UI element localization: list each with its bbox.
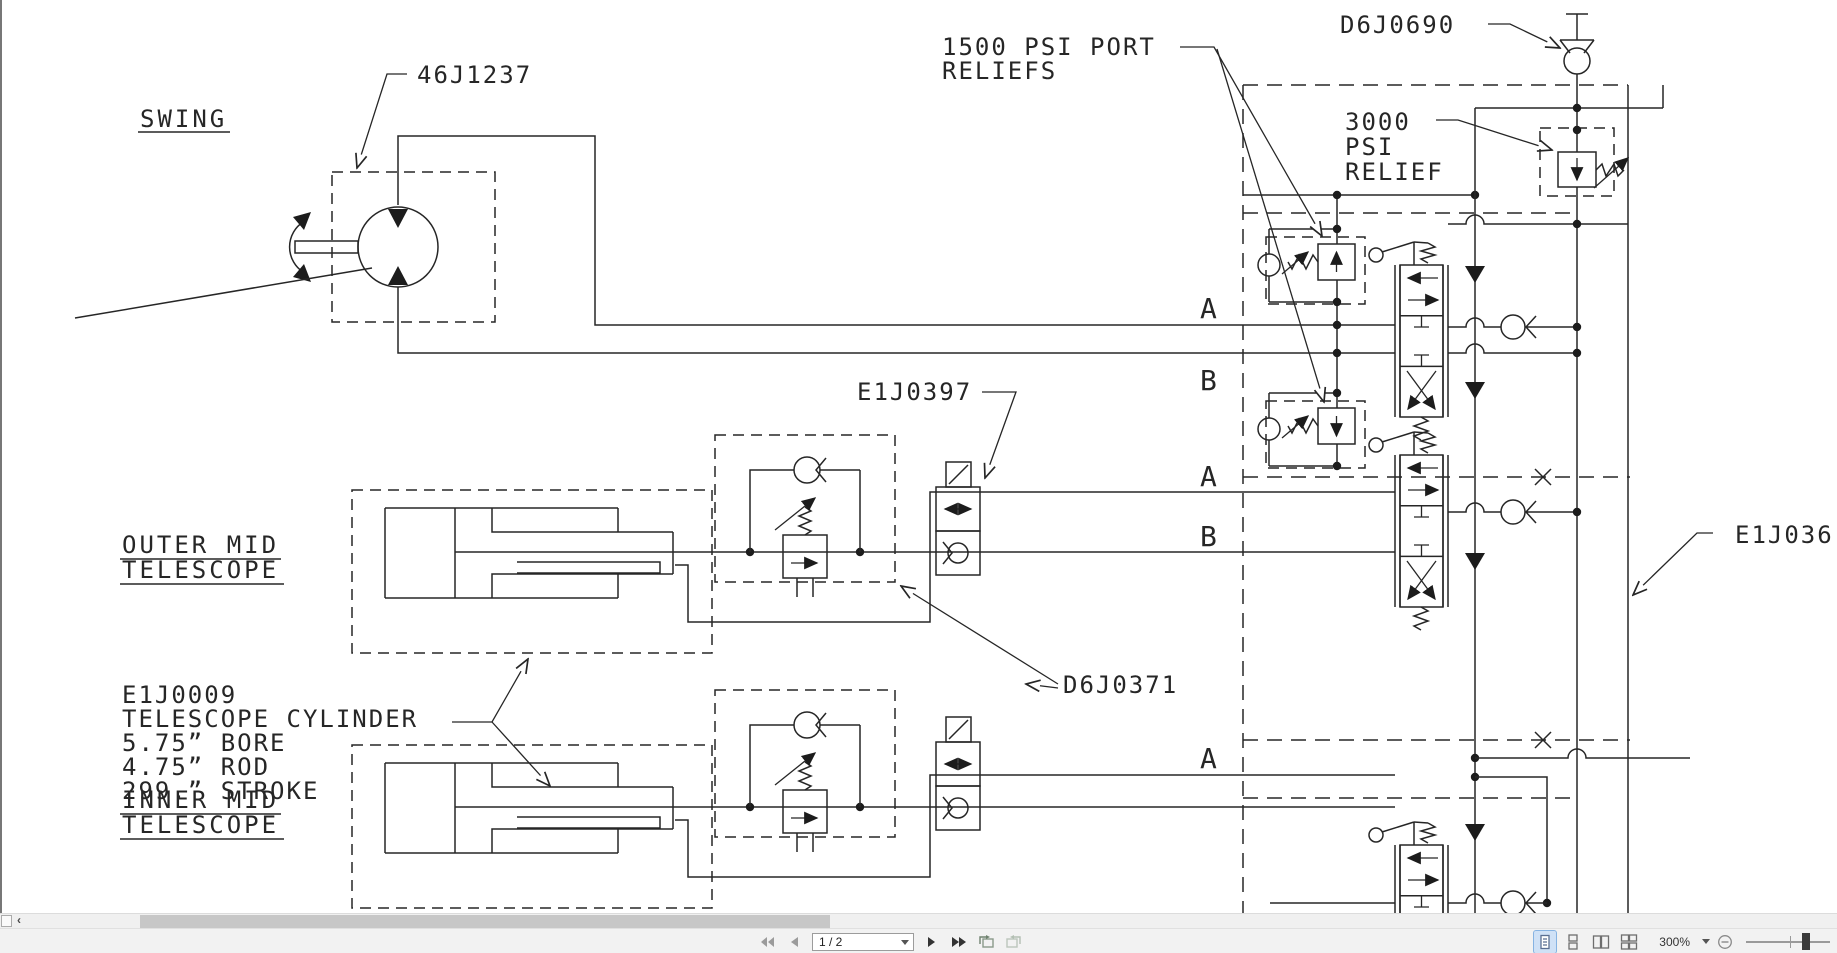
label-outer-mid-1: OUTER MID [122,531,279,559]
scroll-left-chevron-icon[interactable]: ‹ [17,913,21,927]
label-port-a-swing: A [1200,292,1218,325]
pdf-bottom-toolbar: 1 / 2 [0,928,1837,953]
next-view-icon [1005,934,1022,949]
label-port-b-swing: B [1200,364,1218,397]
page-edge [0,0,2,913]
single-page-icon [1537,934,1553,950]
swing-motor-box [332,172,495,322]
zoom-out-button[interactable] [1716,933,1734,951]
label-check-part: D6J0690 [1340,11,1455,39]
first-page-button[interactable] [758,933,776,951]
first-page-icon [759,936,775,948]
page-indicator: 1 / 2 [819,935,842,949]
zoom-dropdown-caret-icon[interactable] [1702,939,1710,944]
horizontal-scrollbar[interactable]: ‹ [0,913,1837,928]
previous-view-icon [978,934,995,949]
label-manifold-part: E1J036 [1735,521,1834,549]
check-valve-d6j0690 [1564,48,1590,74]
label-outer-mid-2: TELESCOPE [122,556,279,584]
zoom-slider-handle[interactable] [1802,933,1810,950]
continuous-view-icon [1565,934,1581,950]
label-relief3000-2: PSI [1345,133,1394,161]
counterbalance-valve-inner [715,690,895,852]
hydraulic-schematic: SWING 46J1237 A B D6J0690 [0,0,1837,913]
facing-continuous-icon [1620,934,1638,950]
cartridge-valve-outer [936,462,980,575]
inner-mid-control-valve [1369,822,1448,913]
facing-view-button[interactable] [1590,931,1612,953]
label-relief3000-3: RELIEF [1345,158,1444,186]
page-dropdown-caret-icon[interactable] [901,940,909,945]
last-page-icon [951,936,967,948]
next-page-button[interactable] [923,933,941,951]
scrollbar-thumb[interactable] [140,915,830,928]
cartridge-valve-inner [936,717,980,830]
inner-telescope-cylinder [385,763,673,853]
label-motor-part: 46J1237 [417,61,532,89]
label-swing: SWING [140,105,227,133]
swing-control-valve [1369,242,1448,440]
label-inner-mid-1: INNER MID [122,786,279,814]
label-port-reliefs-2: RELIEFS [942,57,1057,85]
label-port-b-mid: B [1200,520,1218,553]
pdf-page[interactable]: SWING 46J1237 A B D6J0690 [0,0,1837,913]
zoom-slider-track[interactable] [1746,941,1830,943]
zoom-slider-tick [1790,936,1791,948]
page-number-input[interactable]: 1 / 2 [812,933,914,951]
single-page-view-button[interactable] [1534,931,1556,953]
zoom-slider[interactable] [1746,932,1830,952]
pdf-viewer-window: SWING 46J1237 A B D6J0690 [0,0,1837,953]
last-page-button[interactable] [950,933,968,951]
previous-page-button[interactable] [785,933,803,951]
counterbalance-valve-outer [715,435,895,597]
outer-cylinder-box [352,490,712,653]
inner-cylinder-box [352,745,712,908]
label-inner-mid-2: TELESCOPE [122,811,279,839]
zoom-out-icon [1717,934,1733,950]
zoom-level: 300% [1656,935,1690,949]
label-counterbalance-part: D6J0371 [1063,671,1178,699]
label-cartridge-part: E1J0397 [857,378,972,406]
label-port-a-inner: A [1200,742,1218,775]
facing-continuous-view-button[interactable] [1618,931,1640,953]
previous-page-icon [789,936,799,948]
continuous-view-button[interactable] [1562,931,1584,953]
previous-view-button[interactable] [977,933,995,951]
port-relief-valve-b [1258,389,1365,470]
outer-mid-control-valve [1369,432,1448,630]
label-relief3000-1: 3000 [1345,108,1411,136]
scrollbar-grip[interactable] [1,915,12,927]
outer-telescope-cylinder [385,508,673,598]
next-view-button[interactable] [1004,933,1022,951]
next-page-icon [927,936,937,948]
label-port-a-mid: A [1200,460,1218,493]
facing-view-icon [1592,934,1610,950]
